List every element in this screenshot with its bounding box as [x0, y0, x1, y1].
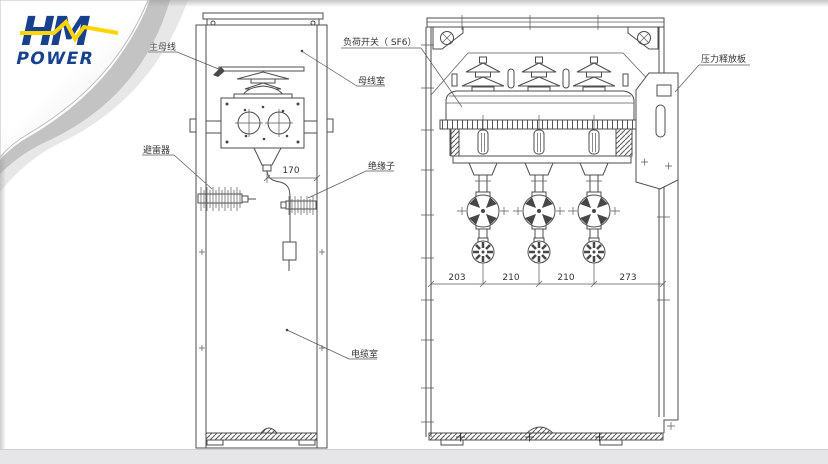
- pole-assembly: [513, 195, 565, 227]
- front-view-base: [429, 427, 663, 445]
- dim-170-text: 170: [282, 166, 299, 176]
- label-busbar-room: 母线室: [358, 75, 385, 87]
- brand-word-bottom: POWER: [14, 49, 96, 69]
- front-dimensions: 203 210 210 273: [428, 273, 666, 287]
- label-pressure-relief: 压力释放板: [701, 53, 746, 65]
- label-load-switch: 负荷开关（ SF6）: [343, 36, 416, 48]
- dim-210-a: 210: [502, 273, 519, 283]
- dim-203: 203: [448, 273, 465, 283]
- sf6-load-switch-tank: [440, 91, 640, 163]
- pole-insulators-top: [452, 57, 628, 91]
- screenshot-root: 170: [0, 0, 828, 464]
- dim-210-b: 210: [557, 273, 574, 283]
- pole-terminal: [472, 241, 494, 263]
- pole-terminal: [528, 241, 550, 263]
- pressure-relief-panel: [636, 73, 678, 433]
- pole-terminal: [583, 241, 605, 263]
- dim-273: 273: [619, 273, 636, 283]
- brand-logo: HM POWER: [14, 8, 144, 72]
- front-view-cabinet: 203 210 210 273: [421, 15, 678, 445]
- pole-assembly: [457, 195, 509, 227]
- pole-assembly: [568, 195, 620, 227]
- operating-mechanism-box: [221, 98, 304, 148]
- switch-poles: [457, 163, 620, 284]
- label-insulator: 绝缘子: [368, 160, 395, 172]
- label-cable-room: 电缆室: [351, 348, 378, 360]
